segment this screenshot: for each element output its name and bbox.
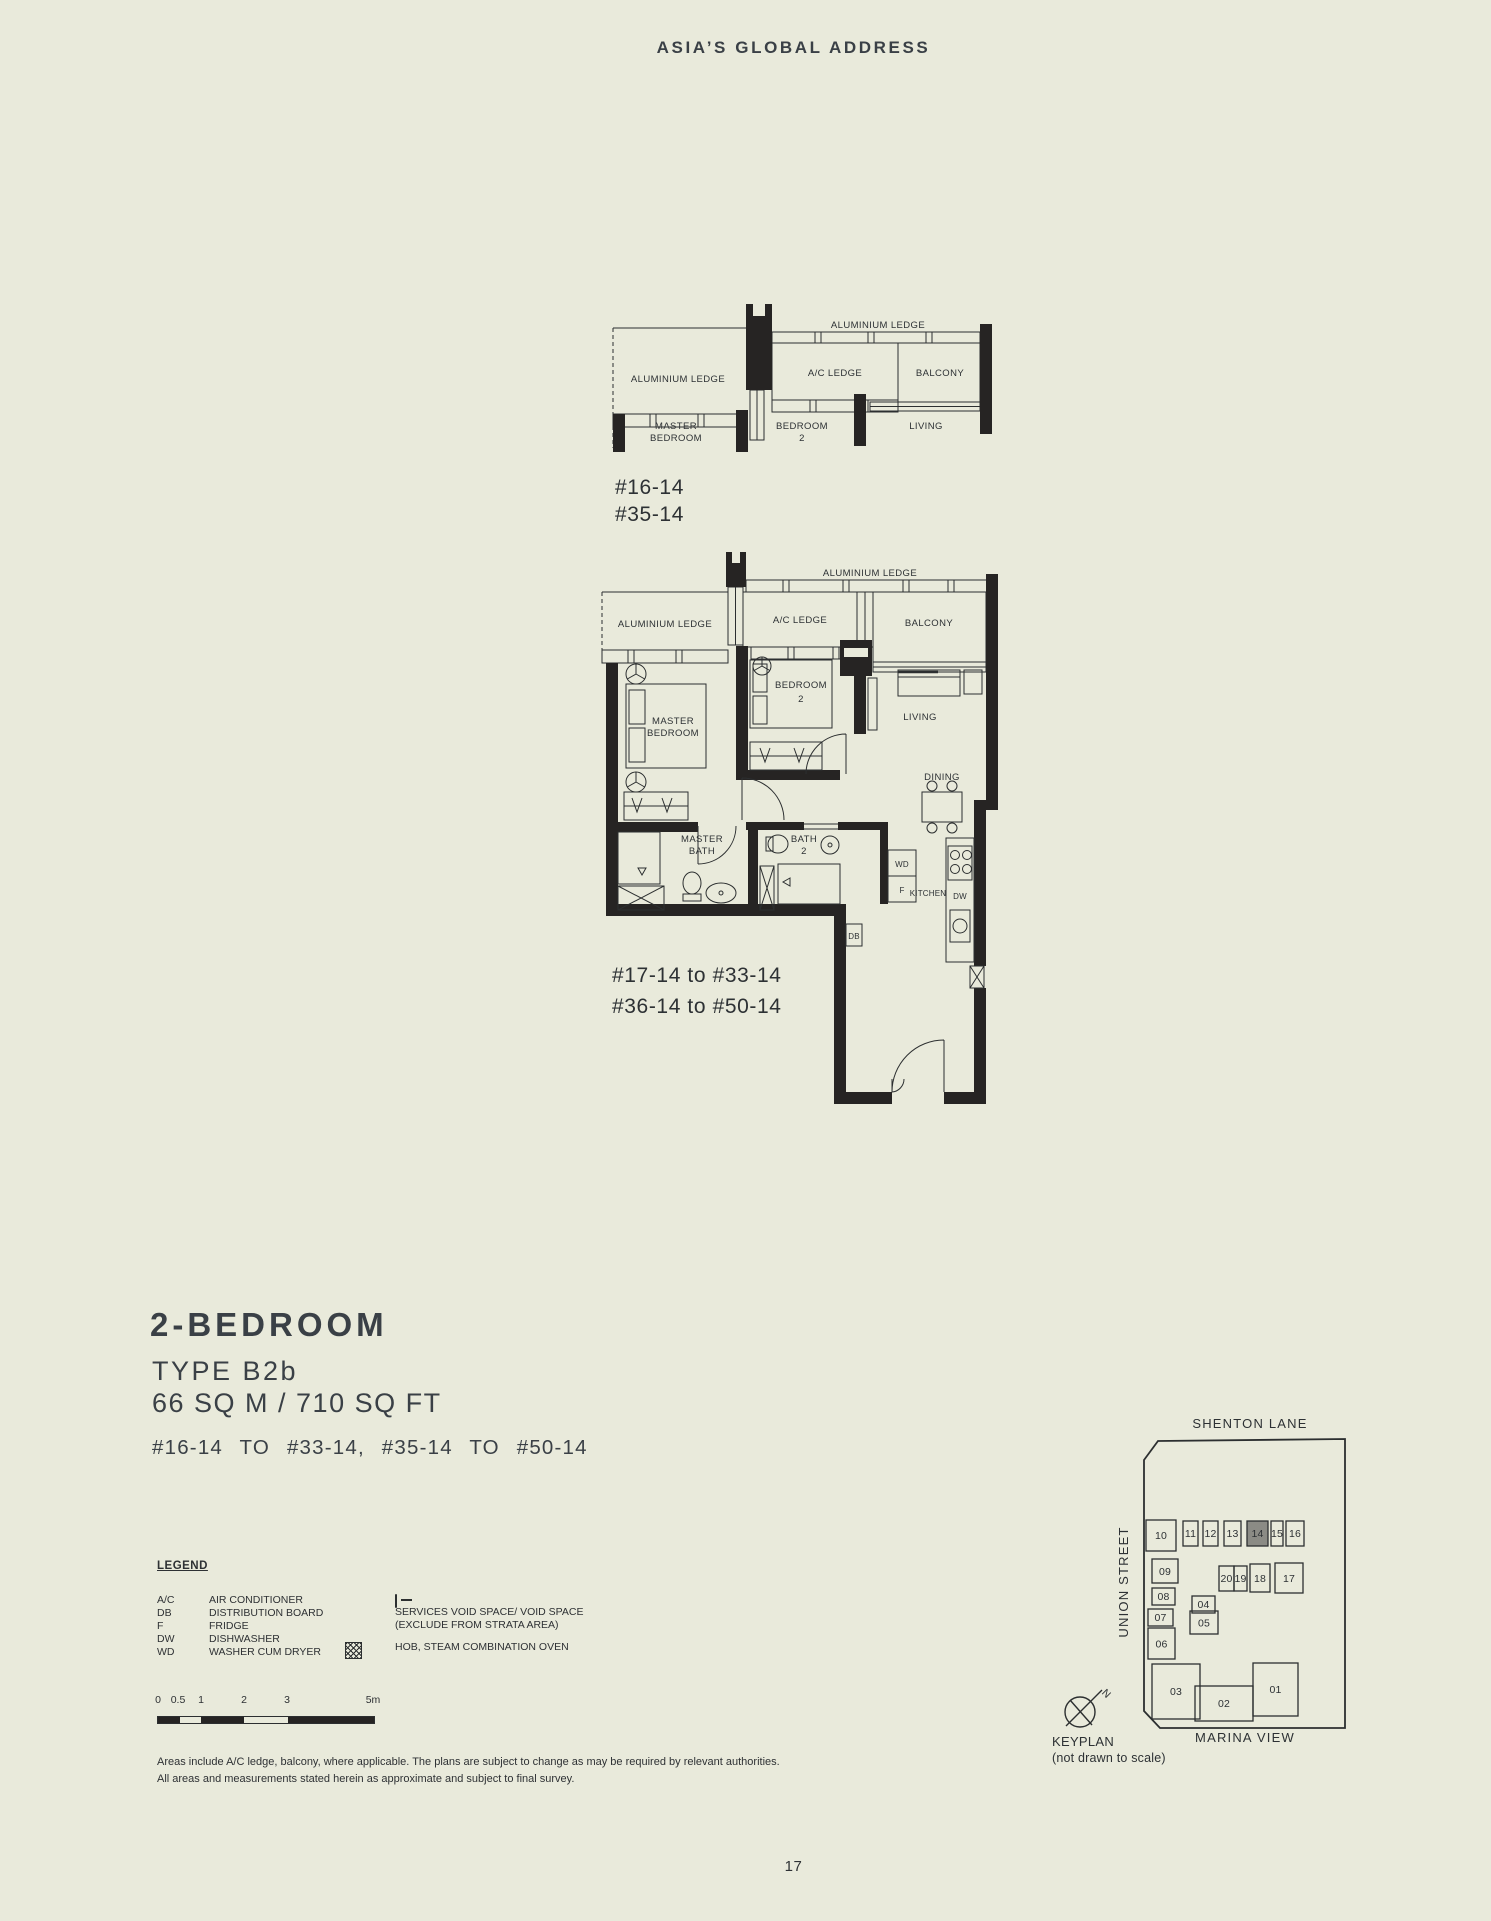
brochure-page: ASIA’S GLOBAL ADDRESS ALUMINIUM LEDGE A — [0, 0, 1491, 1921]
svg-text:BEDROOM: BEDROOM — [650, 433, 702, 444]
room-label-aluminium-ledge-left: ALUMINIUM LEDGE — [618, 619, 712, 630]
basin — [821, 836, 839, 854]
page-header: ASIA’S GLOBAL ADDRESS — [96, 38, 1491, 58]
street-label-left: UNION STREET — [1116, 1526, 1131, 1637]
room-label-bath2: BATH — [791, 834, 817, 845]
entrance-door-arc — [892, 1040, 944, 1092]
door-arc — [742, 778, 784, 820]
tv-console — [868, 678, 877, 730]
north-arrow-icon — [1065, 1690, 1102, 1727]
toilet — [768, 835, 788, 853]
sofa — [898, 670, 960, 696]
svg-text:2: 2 — [801, 846, 807, 857]
section-plan: ALUMINIUM LEDGE ALUMINIUM LEDGE A/C LEDG… — [610, 298, 1005, 466]
svg-text:14: 14 — [1251, 1528, 1263, 1540]
section-plan-unit-numbers: #16-14 #35-14 — [615, 474, 684, 528]
room-label-balcony: BALCONY — [905, 618, 953, 629]
floor-plan: ALUMINIUM LEDGE ALUMINIUM LEDGE A/C LEDG… — [598, 552, 1018, 1117]
legend: LEGEND A/CAIR CONDITIONER DBDISTRIBUTION… — [157, 1560, 717, 1572]
svg-text:17: 17 — [1283, 1573, 1295, 1585]
legend-symbol-row: SERVICES VOID SPACE/ VOID SPACE (EXCLUDE… — [345, 1594, 583, 1632]
scale-bar-ruler — [157, 1716, 375, 1724]
unit-number-line: #17-14 to #33-14 — [612, 960, 782, 991]
legend-row: FFRIDGE — [157, 1620, 323, 1633]
unit-area: 66 SQ M / 710 SQ FT — [152, 1388, 442, 1419]
room-label-living: LIVING — [909, 421, 943, 432]
legend-heading: LEGEND — [157, 1560, 717, 1572]
entrance-door-arc — [892, 1079, 904, 1092]
svg-text:11: 11 — [1185, 1528, 1196, 1540]
svg-text:03: 03 — [1170, 1686, 1182, 1698]
hob-icon — [345, 1642, 362, 1659]
legend-row: WDWASHER CUM DRYER — [157, 1646, 323, 1659]
svg-text:12: 12 — [1204, 1528, 1216, 1540]
room-label-aluminium-ledge-left: ALUMINIUM LEDGE — [631, 374, 725, 385]
svg-text:20: 20 — [1220, 1573, 1232, 1585]
room-label-kitchen: KITCHEN — [910, 889, 947, 898]
disclaimer: Areas include A/C ledge, balcony, where … — [157, 1754, 877, 1788]
room-label-master-bath: MASTER — [681, 834, 723, 845]
svg-text:06: 06 — [1155, 1639, 1167, 1651]
sliding-door — [804, 824, 838, 829]
legend-symbols: SERVICES VOID SPACE/ VOID SPACE (EXCLUDE… — [345, 1594, 583, 1676]
svg-text:13: 13 — [1226, 1528, 1238, 1540]
svg-text:02: 02 — [1218, 1698, 1230, 1710]
unit-range: #16-14 TO #33-14, #35-14 TO #50-14 — [152, 1436, 588, 1460]
dining-table — [922, 792, 962, 822]
label-db: DB — [848, 932, 860, 941]
toilet — [683, 872, 701, 894]
page-number: 17 — [96, 1858, 1491, 1875]
svg-text:09: 09 — [1159, 1566, 1171, 1578]
svg-text:10: 10 — [1155, 1530, 1167, 1542]
room-label-bedroom2: BEDROOM — [775, 680, 827, 691]
svg-text:BATH: BATH — [689, 846, 715, 857]
label-dw: DW — [953, 892, 967, 901]
street-label-bottom: MARINA VIEW — [1195, 1730, 1295, 1745]
scale-bar: 0 0.5 1 2 3 5m — [157, 1694, 377, 1728]
north-label: N — [1099, 1687, 1113, 1701]
svg-text:07: 07 — [1154, 1612, 1166, 1624]
room-label-aluminium-ledge-top: ALUMINIUM LEDGE — [831, 320, 925, 331]
svg-text:2: 2 — [798, 694, 804, 705]
room-label-balcony: BALCONY — [916, 368, 964, 379]
label-wd: WD — [895, 860, 909, 869]
svg-text:18: 18 — [1254, 1573, 1266, 1585]
basin — [706, 883, 736, 903]
svg-text:16: 16 — [1289, 1528, 1301, 1540]
legend-row: A/CAIR CONDITIONER — [157, 1594, 323, 1607]
label-f: F — [899, 886, 904, 895]
svg-text:05: 05 — [1198, 1618, 1210, 1630]
legend-row: DWDISHWASHER — [157, 1633, 323, 1646]
room-label-master-bedroom: MASTER — [652, 716, 694, 727]
street-label-top: SHENTON LANE — [1192, 1416, 1307, 1431]
dining-chair — [927, 823, 937, 833]
dining-chair — [947, 823, 957, 833]
legend-symbol-row: HOB, STEAM COMBINATION OVEN — [345, 1641, 583, 1667]
unit-number-line: #16-14 — [615, 474, 684, 501]
ceiling-fan-icon — [753, 657, 771, 675]
legend-abbreviations: A/CAIR CONDITIONER DBDISTRIBUTION BOARD … — [157, 1594, 323, 1659]
unit-number-line: #36-14 to #50-14 — [612, 991, 782, 1022]
pillow — [629, 728, 645, 762]
room-label-living: LIVING — [903, 712, 937, 723]
unit-number-line: #35-14 — [615, 501, 684, 528]
bed2 — [750, 660, 832, 728]
room-label-ac-ledge: A/C LEDGE — [808, 368, 862, 379]
svg-text:08: 08 — [1157, 1591, 1169, 1603]
door-arc — [698, 826, 736, 864]
door-arc — [806, 734, 846, 774]
svg-text:BEDROOM: BEDROOM — [647, 728, 699, 739]
svg-text:01: 01 — [1269, 1684, 1281, 1696]
floor-plan-unit-numbers: #17-14 to #33-14 #36-14 to #50-14 — [612, 960, 782, 1022]
svg-text:15: 15 — [1271, 1528, 1283, 1540]
keyplan: 10 11 12 13 14 15 16 20 19 18 17 09 08 0… — [1040, 1396, 1440, 1778]
shower — [618, 832, 660, 884]
room-label-ac-ledge: A/C LEDGE — [773, 615, 827, 626]
vent-slot — [844, 648, 868, 657]
room-label-aluminium-ledge-top: ALUMINIUM LEDGE — [823, 568, 917, 579]
ceiling-fan-icon — [626, 664, 646, 684]
svg-text:(not drawn to scale): (not drawn to scale) — [1052, 1751, 1166, 1765]
unit-type-code: TYPE B2b — [152, 1356, 298, 1387]
ceiling-fan-icon — [626, 772, 646, 792]
room-label-dining: DINING — [924, 772, 960, 783]
svg-text:2: 2 — [799, 433, 805, 444]
pillow — [753, 696, 767, 724]
unit-type-title: 2-BEDROOM — [150, 1306, 388, 1344]
svg-text:04: 04 — [1197, 1599, 1209, 1611]
svg-text:19: 19 — [1234, 1573, 1246, 1585]
room-label-bedroom2: BEDROOM — [776, 421, 828, 432]
room-label-master-bedroom: MASTER — [655, 421, 697, 432]
side-table — [964, 670, 982, 694]
keyplan-caption: KEYPLAN — [1052, 1734, 1114, 1749]
services-void-icon — [395, 1594, 397, 1608]
legend-row: DBDISTRIBUTION BOARD — [157, 1607, 323, 1620]
pillow — [629, 690, 645, 724]
